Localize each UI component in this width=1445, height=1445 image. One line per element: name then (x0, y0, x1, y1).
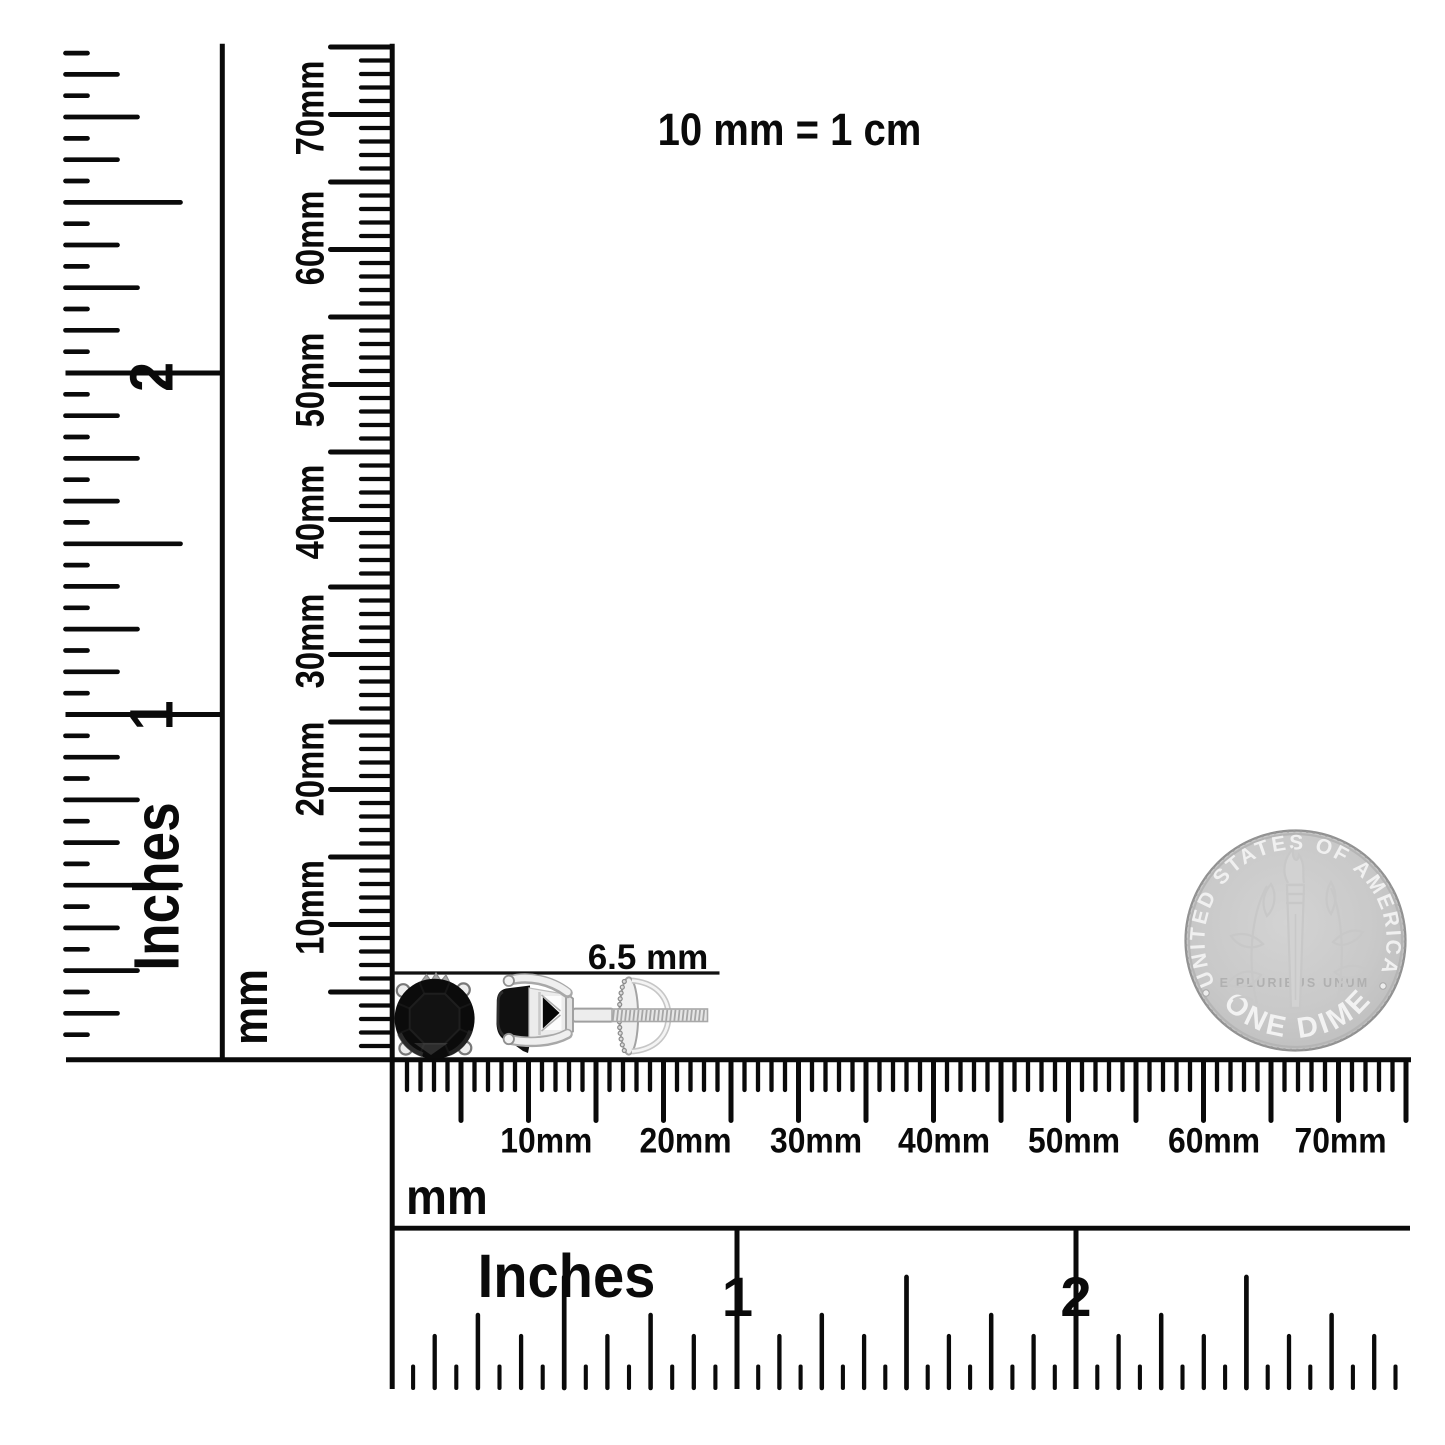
svg-text:6.5 mm: 6.5 mm (588, 938, 709, 977)
svg-text:10mm: 10mm (500, 1122, 592, 1161)
svg-text:30mm: 30mm (770, 1122, 862, 1161)
svg-text:60mm: 60mm (1168, 1122, 1260, 1161)
svg-text:70mm: 70mm (287, 61, 332, 156)
svg-text:60mm: 60mm (287, 191, 332, 286)
svg-text:20mm: 20mm (639, 1122, 731, 1161)
svg-text:Inches: Inches (122, 802, 193, 970)
svg-text:mm: mm (406, 1170, 488, 1225)
svg-text:2: 2 (1060, 1265, 1091, 1328)
svg-text:mm: mm (222, 969, 277, 1045)
svg-text:1: 1 (722, 1265, 753, 1328)
svg-text:30mm: 30mm (287, 594, 332, 689)
svg-text:50mm: 50mm (1028, 1122, 1120, 1161)
svg-text:2: 2 (118, 362, 186, 392)
svg-text:10 mm = 1 cm: 10 mm = 1 cm (658, 105, 922, 156)
svg-text:1: 1 (118, 701, 186, 731)
svg-text:10mm: 10mm (287, 860, 332, 955)
svg-text:Inches: Inches (478, 1243, 656, 1311)
svg-text:50mm: 50mm (287, 333, 332, 428)
svg-text:40mm: 40mm (898, 1122, 990, 1161)
svg-text:20mm: 20mm (287, 722, 332, 817)
svg-text:40mm: 40mm (287, 465, 332, 560)
svg-text:70mm: 70mm (1294, 1122, 1386, 1161)
